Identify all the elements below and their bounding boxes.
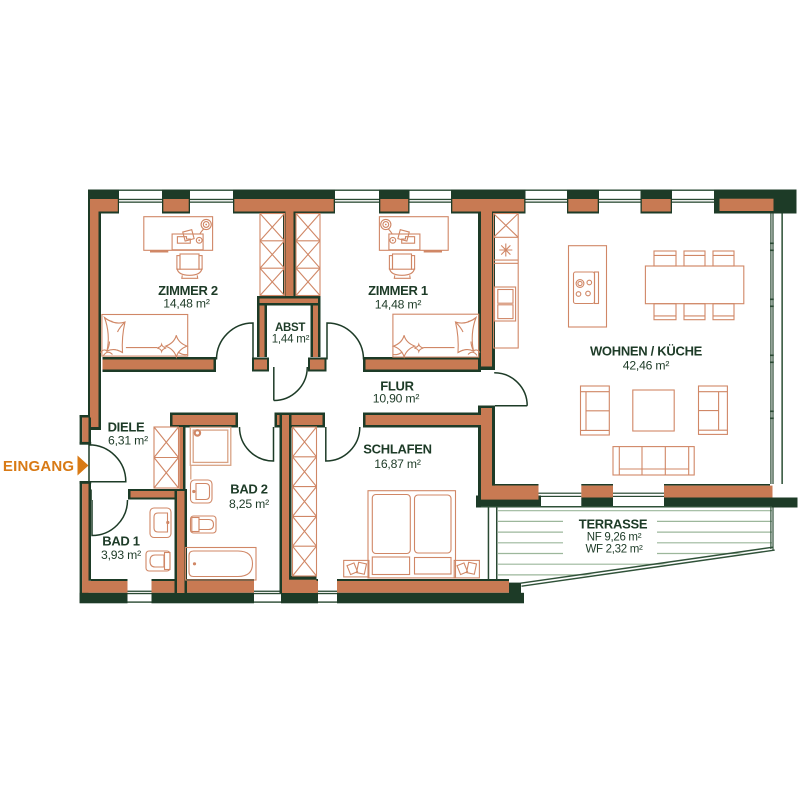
- svg-text:BAD 1: BAD 1: [102, 534, 140, 549]
- svg-text:16,87 m²: 16,87 m²: [374, 457, 421, 471]
- svg-text:1,44 m²: 1,44 m²: [272, 334, 310, 346]
- svg-text:EINGANG: EINGANG: [3, 458, 74, 475]
- svg-text:BAD 2: BAD 2: [230, 482, 268, 497]
- svg-text:ZIMMER 1: ZIMMER 1: [368, 283, 428, 298]
- svg-text:ABST: ABST: [275, 322, 305, 334]
- svg-text:14,48 m²: 14,48 m²: [163, 296, 210, 310]
- svg-text:14,48 m²: 14,48 m²: [375, 297, 422, 311]
- svg-text:8,25 m²: 8,25 m²: [229, 497, 269, 511]
- svg-text:WOHNEN / KÜCHE: WOHNEN / KÜCHE: [590, 344, 703, 359]
- svg-text:3,93 m²: 3,93 m²: [101, 548, 141, 562]
- svg-text:42,46 m²: 42,46 m²: [623, 359, 670, 373]
- svg-text:SCHLAFEN: SCHLAFEN: [363, 441, 431, 456]
- svg-text:WF 2,32 m²: WF 2,32 m²: [585, 543, 643, 555]
- svg-text:10,90 m²: 10,90 m²: [373, 391, 420, 405]
- svg-text:TERRASSE: TERRASSE: [579, 517, 648, 532]
- svg-text:NF 9,26 m²: NF 9,26 m²: [587, 531, 642, 543]
- svg-text:DIELE: DIELE: [108, 420, 145, 435]
- svg-text:6,31 m²: 6,31 m²: [108, 434, 148, 448]
